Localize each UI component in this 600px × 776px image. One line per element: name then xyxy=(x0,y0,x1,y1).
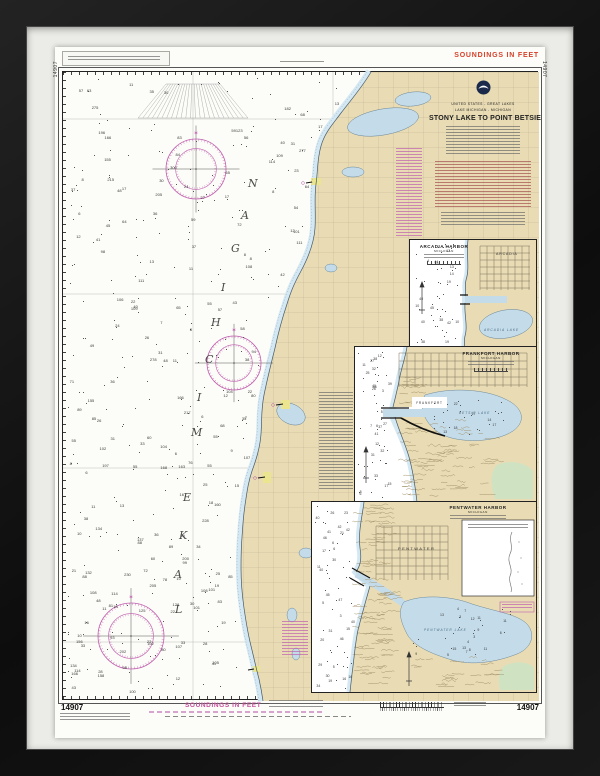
lake-letter: I xyxy=(221,281,225,294)
top-margin-note xyxy=(280,61,324,62)
continuation-title xyxy=(468,524,528,529)
chart-number-bottom-left: 14907 xyxy=(61,703,83,712)
svg-text:✶: ✶ xyxy=(128,594,133,601)
chart-number-right-edge: 14907 xyxy=(541,61,547,77)
noaa-logo-icon xyxy=(476,80,491,95)
lake-letter: I xyxy=(197,391,201,404)
title-notes-2 xyxy=(435,161,531,207)
lake-letter: N xyxy=(248,177,258,190)
compass-rose: ✶ xyxy=(153,126,240,213)
pentwater-continuation-inset xyxy=(462,520,534,596)
chart-number-left-edge: 14907 xyxy=(53,61,59,77)
corrected-through-note xyxy=(149,711,325,713)
chart-note-magenta-2 xyxy=(282,621,308,657)
chart-number-bottom-right: 14907 xyxy=(517,703,539,712)
lake-letter: K xyxy=(179,529,187,542)
soundings-note-bottom: SOUNDINGS IN FEET xyxy=(185,702,261,709)
facilities-table xyxy=(319,392,353,490)
lake-line: LAKE MICHIGAN - MICHIGAN xyxy=(429,108,537,112)
soundings-note-top: SOUNDINGS IN FEET xyxy=(454,52,539,59)
frankfort-town-label-box: FRANKFORT xyxy=(412,397,447,408)
pentwater-note xyxy=(502,604,532,610)
lake-letter: A xyxy=(241,209,249,222)
svg-text:✶: ✶ xyxy=(231,327,236,334)
framed-nautical-chart: SOUNDINGS IN FEET 14907 14907 xyxy=(0,0,600,776)
title-notes-1 xyxy=(446,126,520,156)
bottom-left-note xyxy=(60,713,130,720)
inset-frankfort-harbor: FRANKFORT HARBOR MICHIGAN FRANKFORT BETS… xyxy=(354,346,537,503)
bottom-center-note xyxy=(269,700,323,709)
pentwater-map xyxy=(312,502,536,692)
lake-letter: C xyxy=(205,353,213,366)
north-arrow xyxy=(419,282,425,314)
sticker-text-texture xyxy=(68,56,160,61)
inset-arcadia-harbor: ARCADIA HARBOR MICHIGAN ARCADIA ARCADIA … xyxy=(409,239,537,348)
country-line: UNITED STATES - GREAT LAKES xyxy=(429,102,537,106)
lake-letter: G xyxy=(231,242,240,255)
chart-title-block: UNITED STATES - GREAT LAKES LAKE MICHIGA… xyxy=(429,80,537,226)
lake-letter: H xyxy=(211,316,221,329)
bottom-right-note xyxy=(454,702,486,708)
lake-letter: E xyxy=(183,491,191,504)
inset-title-pentwater: PENTWATER HARBOR MICHIGAN xyxy=(432,505,524,520)
bottom-long-note xyxy=(165,716,351,717)
speed-scale-labels xyxy=(380,708,444,711)
lake-letter: L xyxy=(175,603,182,616)
compass-rose: ✶ xyxy=(83,588,179,684)
chart-area: ✶✶✶ 404892301810610155100166378110889410… xyxy=(62,71,538,700)
chart-paper: SOUNDINGS IN FEET 14907 14907 xyxy=(55,47,545,738)
title-notes-3 xyxy=(441,212,525,226)
chart-title: STONY LAKE TO POINT BETSIE xyxy=(429,115,537,122)
svg-text:✶: ✶ xyxy=(193,130,198,137)
inventory-sticker xyxy=(62,51,170,66)
lake-letter: M xyxy=(191,426,202,439)
chart-note-magenta xyxy=(396,148,422,236)
lake-letter: A xyxy=(174,568,182,581)
inset-pentwater-harbor: PENTWATER HARBOR MICHIGAN PENTWATER PENT… xyxy=(311,501,537,693)
inset-title-arcadia: ARCADIA HARBOR MICHIGAN xyxy=(416,244,472,265)
north-arrow xyxy=(363,447,369,483)
inset-title-frankfort: FRANKFORT HARBOR MICHIGAN xyxy=(453,351,529,372)
